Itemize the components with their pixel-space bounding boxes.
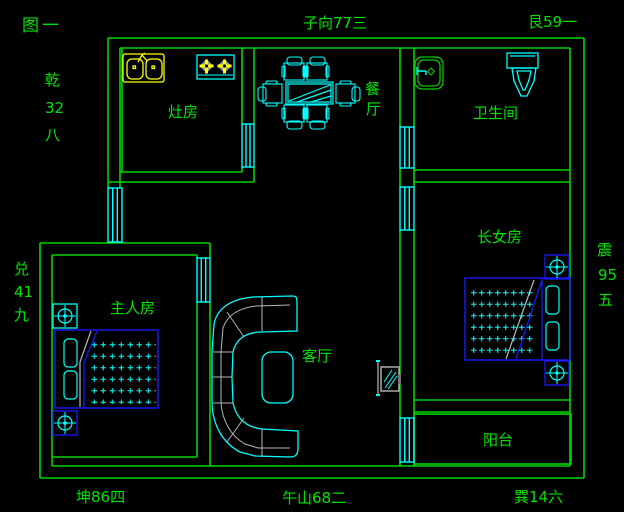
dining-table [286, 82, 333, 104]
door-hatch-daughter-room [400, 187, 414, 230]
dining-chair [305, 57, 329, 80]
room-label-bathroom: 卫生间 [473, 104, 518, 122]
compass-top-right: 艮59一 [528, 13, 577, 31]
nightstand-lamp [545, 361, 569, 385]
nightstand-lamp [53, 411, 77, 435]
floor-plan-drawing: 图一 子向77三 艮59一 乾 32 八 兑 41 九 震 95 五 坤86四 … [0, 0, 624, 512]
stove-icon [197, 55, 234, 79]
daughter-bed [465, 278, 570, 360]
compass-right-1: 震 [597, 241, 612, 259]
door-hatch-bathroom [400, 127, 414, 168]
bathroom-sink-icon [415, 57, 443, 89]
room-labels: 灶房 餐 厅 卫生间 长女房 主人房 客厅 阳台 [110, 80, 522, 449]
room-label-dining-2: 厅 [366, 100, 381, 118]
compass-bottom-center: 午山68二 [282, 489, 346, 507]
window-hatch-left-wall [108, 188, 122, 242]
nightstand-lamp [53, 304, 77, 328]
compass-left-lower-3: 九 [14, 306, 29, 324]
toilet-icon [507, 53, 538, 96]
room-label-daughter: 长女房 [477, 228, 522, 246]
master-bed [55, 330, 158, 408]
compass-top-center: 子向77三 [303, 14, 367, 32]
figure-title: 图一 [22, 16, 62, 36]
room-label-master: 主人房 [110, 299, 155, 317]
compass-left-lower-1: 兑 [14, 260, 29, 278]
dining-chair [282, 105, 306, 129]
compass-right-2: 95 [598, 266, 617, 284]
compass-left-upper-1: 乾 [45, 71, 60, 89]
dining-chair [258, 81, 282, 106]
room-label-living: 客厅 [302, 347, 332, 365]
kitchen-sink-icon [123, 53, 164, 82]
figure-title-text: 图一 [22, 16, 62, 36]
door-hatch-balcony [400, 418, 414, 462]
compass-right-3: 五 [598, 291, 613, 309]
door-hatch-kitchen [242, 124, 254, 167]
sofa [212, 296, 298, 457]
room-label-dining-1: 餐 [365, 80, 380, 98]
room-label-balcony: 阳台 [483, 431, 513, 449]
dining-chair [336, 81, 360, 106]
compass-bottom-right: 巽14六 [514, 488, 563, 506]
dining-chair [305, 105, 329, 129]
compass-left-upper-2: 32 [45, 99, 64, 117]
coffee-table [262, 352, 293, 403]
compass-left-lower-2: 41 [14, 283, 33, 301]
tv-icon [376, 360, 401, 396]
compass-left-upper-3: 八 [45, 126, 60, 144]
floor-plan-canvas: 图一 子向77三 艮59一 乾 32 八 兑 41 九 震 95 五 坤86四 … [0, 0, 624, 512]
compass-bottom-left: 坤86四 [76, 488, 125, 506]
dining-chair [282, 57, 306, 80]
nightstand-lamp [545, 255, 569, 279]
room-label-kitchen: 灶房 [168, 103, 198, 121]
door-hatch-master-bedroom [197, 258, 210, 302]
